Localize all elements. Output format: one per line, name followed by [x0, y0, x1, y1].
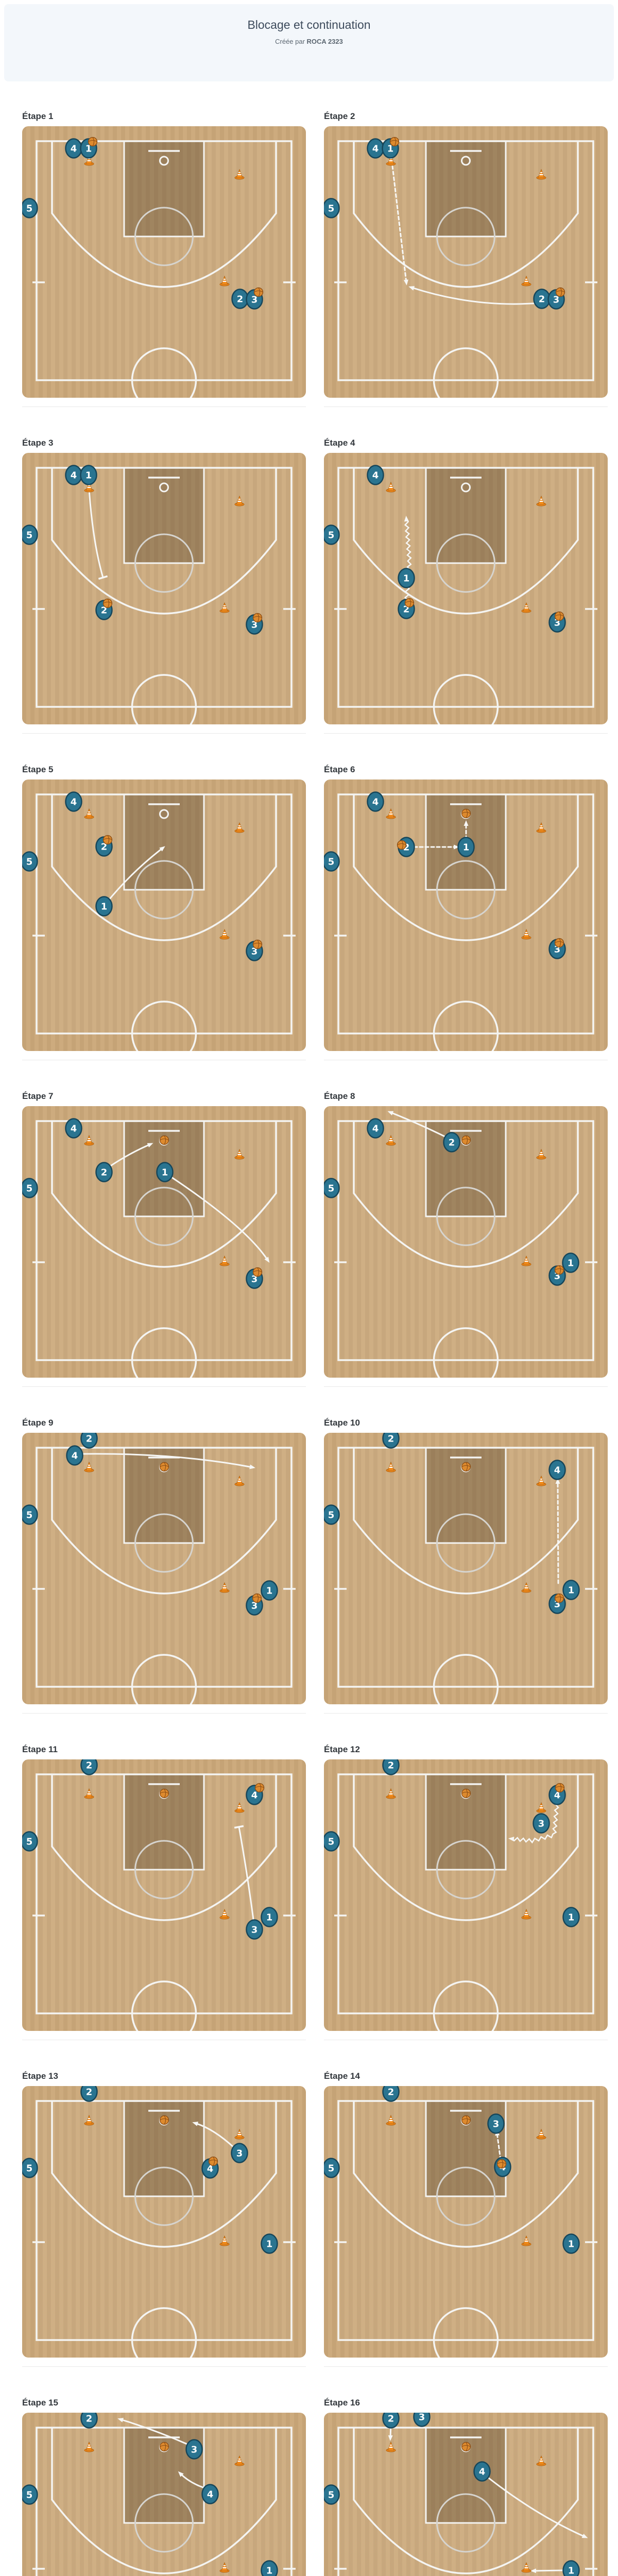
player-marker: 1 [262, 2234, 278, 2253]
player-number: 2 [388, 1433, 394, 1444]
player-number: 1 [101, 901, 108, 912]
player-number: 1 [85, 470, 92, 481]
court-diagram-9: 24513 [22, 1433, 306, 1704]
step-block: Étape 141523 [22, 111, 306, 407]
step-block: Étape 642153 [324, 765, 608, 1060]
player-marker: 1 [262, 1581, 278, 1600]
court-floor [22, 1433, 306, 1704]
player-number: 5 [328, 1510, 335, 1520]
step-label: Étape 1 [22, 111, 306, 122]
player-number: 5 [328, 1836, 335, 1847]
player-marker: 2 [383, 2086, 399, 2102]
basketball-icon [555, 612, 564, 621]
step-block: Étape 441253 [324, 438, 608, 734]
page: Blocage et continuation Créée par ROCA 2… [0, 4, 618, 2576]
court-floor [22, 2086, 306, 2358]
player-marker: 3 [186, 2440, 202, 2459]
player-marker: 5 [22, 1505, 38, 1524]
player-marker: 5 [324, 852, 339, 871]
player-number: 4 [251, 1790, 258, 1801]
player-number: 4 [71, 470, 77, 481]
step-block: Étape 1423451 [324, 2071, 608, 2367]
player-number: 1 [568, 1258, 574, 1268]
player-marker: 5 [324, 1832, 339, 1851]
basketball-icon [209, 2157, 218, 2166]
player-marker: 2 [383, 2413, 399, 2428]
player-number: 1 [568, 2565, 575, 2576]
player-marker: 4 [66, 1119, 82, 1138]
player-marker: 4 [202, 2485, 218, 2504]
player-number: 2 [101, 1167, 108, 1178]
key-area [426, 2428, 506, 2523]
basketball-icon [462, 1789, 471, 1798]
player-number: 4 [71, 796, 77, 807]
player-marker: 2 [81, 1759, 97, 1775]
player-marker: 5 [324, 199, 339, 218]
step-block: Étape 1323451 [22, 2071, 306, 2367]
player-marker: 4 [66, 466, 82, 485]
player-marker: 1 [262, 2561, 278, 2576]
player-marker: 1 [458, 838, 474, 857]
basketball-icon [462, 2116, 471, 2125]
basketball-icon [253, 1268, 262, 1277]
court-floor [22, 126, 306, 398]
player-marker: 1 [157, 1163, 173, 1182]
player-number: 5 [26, 2163, 33, 2174]
player-number: 1 [568, 1912, 575, 1923]
player-number: 4 [372, 796, 379, 807]
basketball-icon [160, 1136, 169, 1145]
key-area [426, 1448, 506, 1543]
player-number: 5 [328, 530, 335, 540]
step-block: Étape 341523 [22, 438, 306, 734]
player-marker: 1 [81, 466, 97, 485]
basketball-icon [462, 1136, 471, 1145]
player-marker: 5 [22, 199, 38, 218]
player-number: 5 [26, 203, 33, 214]
court-floor [324, 1759, 608, 2031]
step-label: Étape 6 [324, 765, 608, 775]
player-number: 2 [388, 2413, 394, 2424]
player-number: 4 [479, 2466, 486, 2477]
subtitle-prefix: Créée par [275, 38, 306, 45]
player-marker: 4 [67, 1446, 83, 1465]
player-number: 5 [328, 2163, 335, 2174]
court-diagram-12: 24351 [324, 1759, 608, 2031]
page-title: Blocage et continuation [4, 18, 614, 32]
step-block: Étape 1523451 [22, 2398, 306, 2576]
basketball-icon [462, 1463, 471, 1471]
player-number: 5 [26, 1183, 33, 1194]
step-block: Étape 842513 [324, 1091, 608, 1387]
step-label: Étape 12 [324, 1744, 608, 1755]
player-number: 2 [388, 2087, 394, 2097]
player-number: 1 [266, 2239, 273, 2249]
player-marker: 5 [324, 1179, 339, 1198]
court-floor [324, 2086, 608, 2358]
court-diagram-15: 23451 [22, 2413, 306, 2576]
player-marker: 3 [488, 2114, 504, 2133]
key-area [124, 2101, 204, 2196]
court-diagram-5: 42153 [22, 779, 306, 1051]
player-marker: 1 [563, 1581, 579, 1600]
player-number: 1 [463, 842, 470, 853]
player-number: 5 [328, 203, 335, 214]
player-marker: 1 [96, 897, 112, 916]
basketball-icon [462, 809, 471, 818]
basketball-icon [398, 841, 406, 850]
player-marker: 1 [563, 2234, 579, 2253]
basketball-icon [405, 599, 414, 607]
player-number: 3 [419, 2413, 425, 2422]
player-marker: 4 [368, 1119, 384, 1138]
player-number: 5 [328, 2489, 335, 2500]
player-number: 1 [266, 1585, 273, 1596]
basketball-icon [253, 1594, 262, 1603]
subtitle-author: ROCA 2323 [307, 38, 343, 45]
player-number: 4 [72, 1450, 78, 1461]
step-label: Étape 9 [22, 1418, 306, 1428]
step-label: Étape 11 [22, 1744, 306, 1755]
player-marker: 4 [368, 792, 384, 811]
court-diagram-14: 23451 [324, 2086, 608, 2358]
basketball-icon [104, 599, 112, 608]
basketball-icon [253, 614, 262, 622]
basketball-icon [160, 1789, 169, 1798]
key-area [426, 468, 506, 563]
player-marker: 2 [81, 1433, 97, 1448]
key-area [426, 1121, 506, 1216]
player-marker: 4 [550, 1461, 565, 1480]
step-label: Étape 7 [22, 1091, 306, 1101]
player-marker: 5 [22, 526, 38, 545]
player-marker: 1 [563, 1908, 579, 1927]
player-marker: 5 [324, 1505, 339, 1524]
player-marker: 4 [368, 139, 384, 158]
court-floor [22, 453, 306, 724]
basketball-icon [555, 1594, 564, 1603]
basketball-icon [556, 1784, 564, 1792]
basketball-icon [497, 2160, 506, 2168]
step-block: Étape 1124513 [22, 1744, 306, 2040]
player-number: 4 [554, 1465, 561, 1476]
player-number: 3 [191, 2444, 198, 2455]
court-diagram-1: 41523 [22, 126, 306, 398]
player-number: 5 [328, 1183, 335, 1194]
player-marker: 2 [81, 2413, 97, 2428]
player-marker: 2 [96, 1163, 112, 1182]
step-block: Étape 1224351 [324, 1744, 608, 2040]
basketball-icon [556, 288, 565, 297]
steps-grid: Étape 141523Étape 241523Étape 341523Étap… [0, 86, 618, 2576]
player-number: 4 [71, 143, 77, 154]
basketball-icon [555, 939, 564, 947]
player-number: 1 [266, 2565, 273, 2576]
player-marker: 4 [368, 466, 384, 485]
court-diagram-2: 41523 [324, 126, 608, 398]
step-label: Étape 14 [324, 2071, 608, 2081]
player-number: 2 [237, 294, 244, 304]
player-marker: 5 [324, 2485, 339, 2504]
player-number: 2 [449, 1137, 455, 1148]
step-label: Étape 16 [324, 2398, 608, 2408]
court-diagram-7: 42153 [22, 1106, 306, 1378]
step-block: Étape 542153 [22, 765, 306, 1060]
basketball-icon [462, 2443, 471, 2451]
player-number: 2 [86, 2413, 93, 2424]
step-label: Étape 3 [22, 438, 306, 448]
step-block: Étape 924513 [22, 1418, 306, 1714]
player-number: 1 [266, 1912, 273, 1923]
player-number: 3 [251, 1924, 258, 1935]
key-area [124, 468, 204, 563]
player-number: 3 [236, 2148, 243, 2159]
player-marker: 1 [262, 1908, 278, 1927]
step-label: Étape 10 [324, 1418, 608, 1428]
player-number: 4 [372, 1123, 379, 1134]
step-block: Étape 1623451 [324, 2398, 608, 2576]
step-label: Étape 13 [22, 2071, 306, 2081]
court-floor [324, 2413, 608, 2576]
player-number: 1 [403, 573, 410, 584]
player-number: 4 [207, 2489, 214, 2500]
key-area [426, 141, 506, 236]
player-marker: 5 [324, 2159, 339, 2178]
header-card: Blocage et continuation Créée par ROCA 2… [4, 4, 614, 81]
court-floor [324, 1106, 608, 1378]
player-number: 2 [86, 1433, 93, 1444]
step-label: Étape 5 [22, 765, 306, 775]
player-marker: 1 [399, 569, 415, 588]
player-marker: 5 [22, 1832, 38, 1851]
step-label: Étape 2 [324, 111, 608, 122]
player-marker: 5 [22, 2485, 38, 2504]
player-marker: 4 [66, 139, 82, 158]
step-block: Étape 742153 [22, 1091, 306, 1387]
player-number: 2 [86, 2087, 93, 2097]
basketball-icon [160, 2116, 169, 2125]
key-area [124, 1774, 204, 1870]
step-label: Étape 15 [22, 2398, 306, 2408]
player-number: 1 [568, 2239, 575, 2249]
page-subtitle: Créée par ROCA 2323 [4, 38, 614, 45]
player-marker: 5 [324, 526, 339, 545]
player-marker: 3 [414, 2413, 430, 2427]
player-number: 2 [539, 294, 545, 304]
key-area [124, 794, 204, 890]
step-block: Étape 1024513 [324, 1418, 608, 1714]
player-marker: 2 [81, 2086, 97, 2102]
court-diagram-10: 24513 [324, 1433, 608, 1704]
player-marker: 1 [563, 1253, 579, 1273]
player-number: 5 [26, 1836, 33, 1847]
player-number: 5 [26, 856, 33, 867]
player-number: 5 [26, 1510, 33, 1520]
court-diagram-11: 24513 [22, 1759, 306, 2031]
player-number: 5 [26, 2489, 33, 2500]
court-floor [324, 453, 608, 724]
basketball-icon [160, 2443, 169, 2451]
player-marker: 2 [444, 1133, 460, 1152]
player-number: 1 [162, 1167, 168, 1178]
step-label: Étape 4 [324, 438, 608, 448]
basketball-icon [390, 138, 399, 146]
step-block: Étape 241523 [324, 111, 608, 407]
basketball-icon [160, 1463, 169, 1471]
court-diagram-16: 23451 [324, 2413, 608, 2576]
player-marker: 3 [232, 2144, 248, 2163]
player-number: 5 [328, 856, 335, 867]
basketball-icon [104, 836, 112, 844]
player-marker: 1 [563, 2561, 579, 2576]
court-floor [22, 1759, 306, 2031]
player-marker: 3 [534, 1814, 550, 1833]
court-diagram-8: 42513 [324, 1106, 608, 1378]
player-marker: 2 [383, 1759, 399, 1775]
court-diagram-3: 41523 [22, 453, 306, 724]
court-floor [324, 779, 608, 1051]
player-marker: 4 [474, 2462, 490, 2481]
player-number: 3 [493, 2119, 500, 2129]
player-marker: 5 [22, 1179, 38, 1198]
player-number: 1 [568, 1585, 575, 1596]
player-number: 5 [26, 530, 33, 540]
court-diagram-6: 42153 [324, 779, 608, 1051]
court-floor [22, 779, 306, 1051]
player-marker: 2 [232, 290, 248, 309]
key-area [124, 141, 204, 236]
player-number: 2 [86, 1760, 93, 1771]
player-marker: 2 [383, 1433, 399, 1448]
court-diagram-4: 41253 [324, 453, 608, 724]
key-area [426, 1774, 506, 1870]
court-floor [22, 1106, 306, 1378]
court-floor [324, 126, 608, 398]
player-number: 4 [372, 470, 379, 481]
basketball-icon [555, 1266, 564, 1275]
player-marker: 3 [247, 1920, 263, 1939]
basketball-icon [89, 138, 97, 146]
basketball-icon [255, 1784, 264, 1792]
step-label: Étape 8 [324, 1091, 608, 1101]
player-number: 4 [71, 1123, 77, 1134]
player-marker: 4 [66, 792, 82, 811]
player-marker: 5 [22, 852, 38, 871]
player-marker: 2 [534, 290, 550, 309]
basketball-icon [254, 288, 263, 297]
player-number: 4 [372, 143, 379, 154]
court-diagram-13: 23451 [22, 2086, 306, 2358]
player-number: 3 [538, 1818, 545, 1829]
player-number: 2 [388, 1760, 394, 1771]
player-marker: 5 [22, 2159, 38, 2178]
key-area [124, 1448, 204, 1543]
court-floor [22, 2413, 306, 2576]
basketball-icon [253, 940, 262, 949]
